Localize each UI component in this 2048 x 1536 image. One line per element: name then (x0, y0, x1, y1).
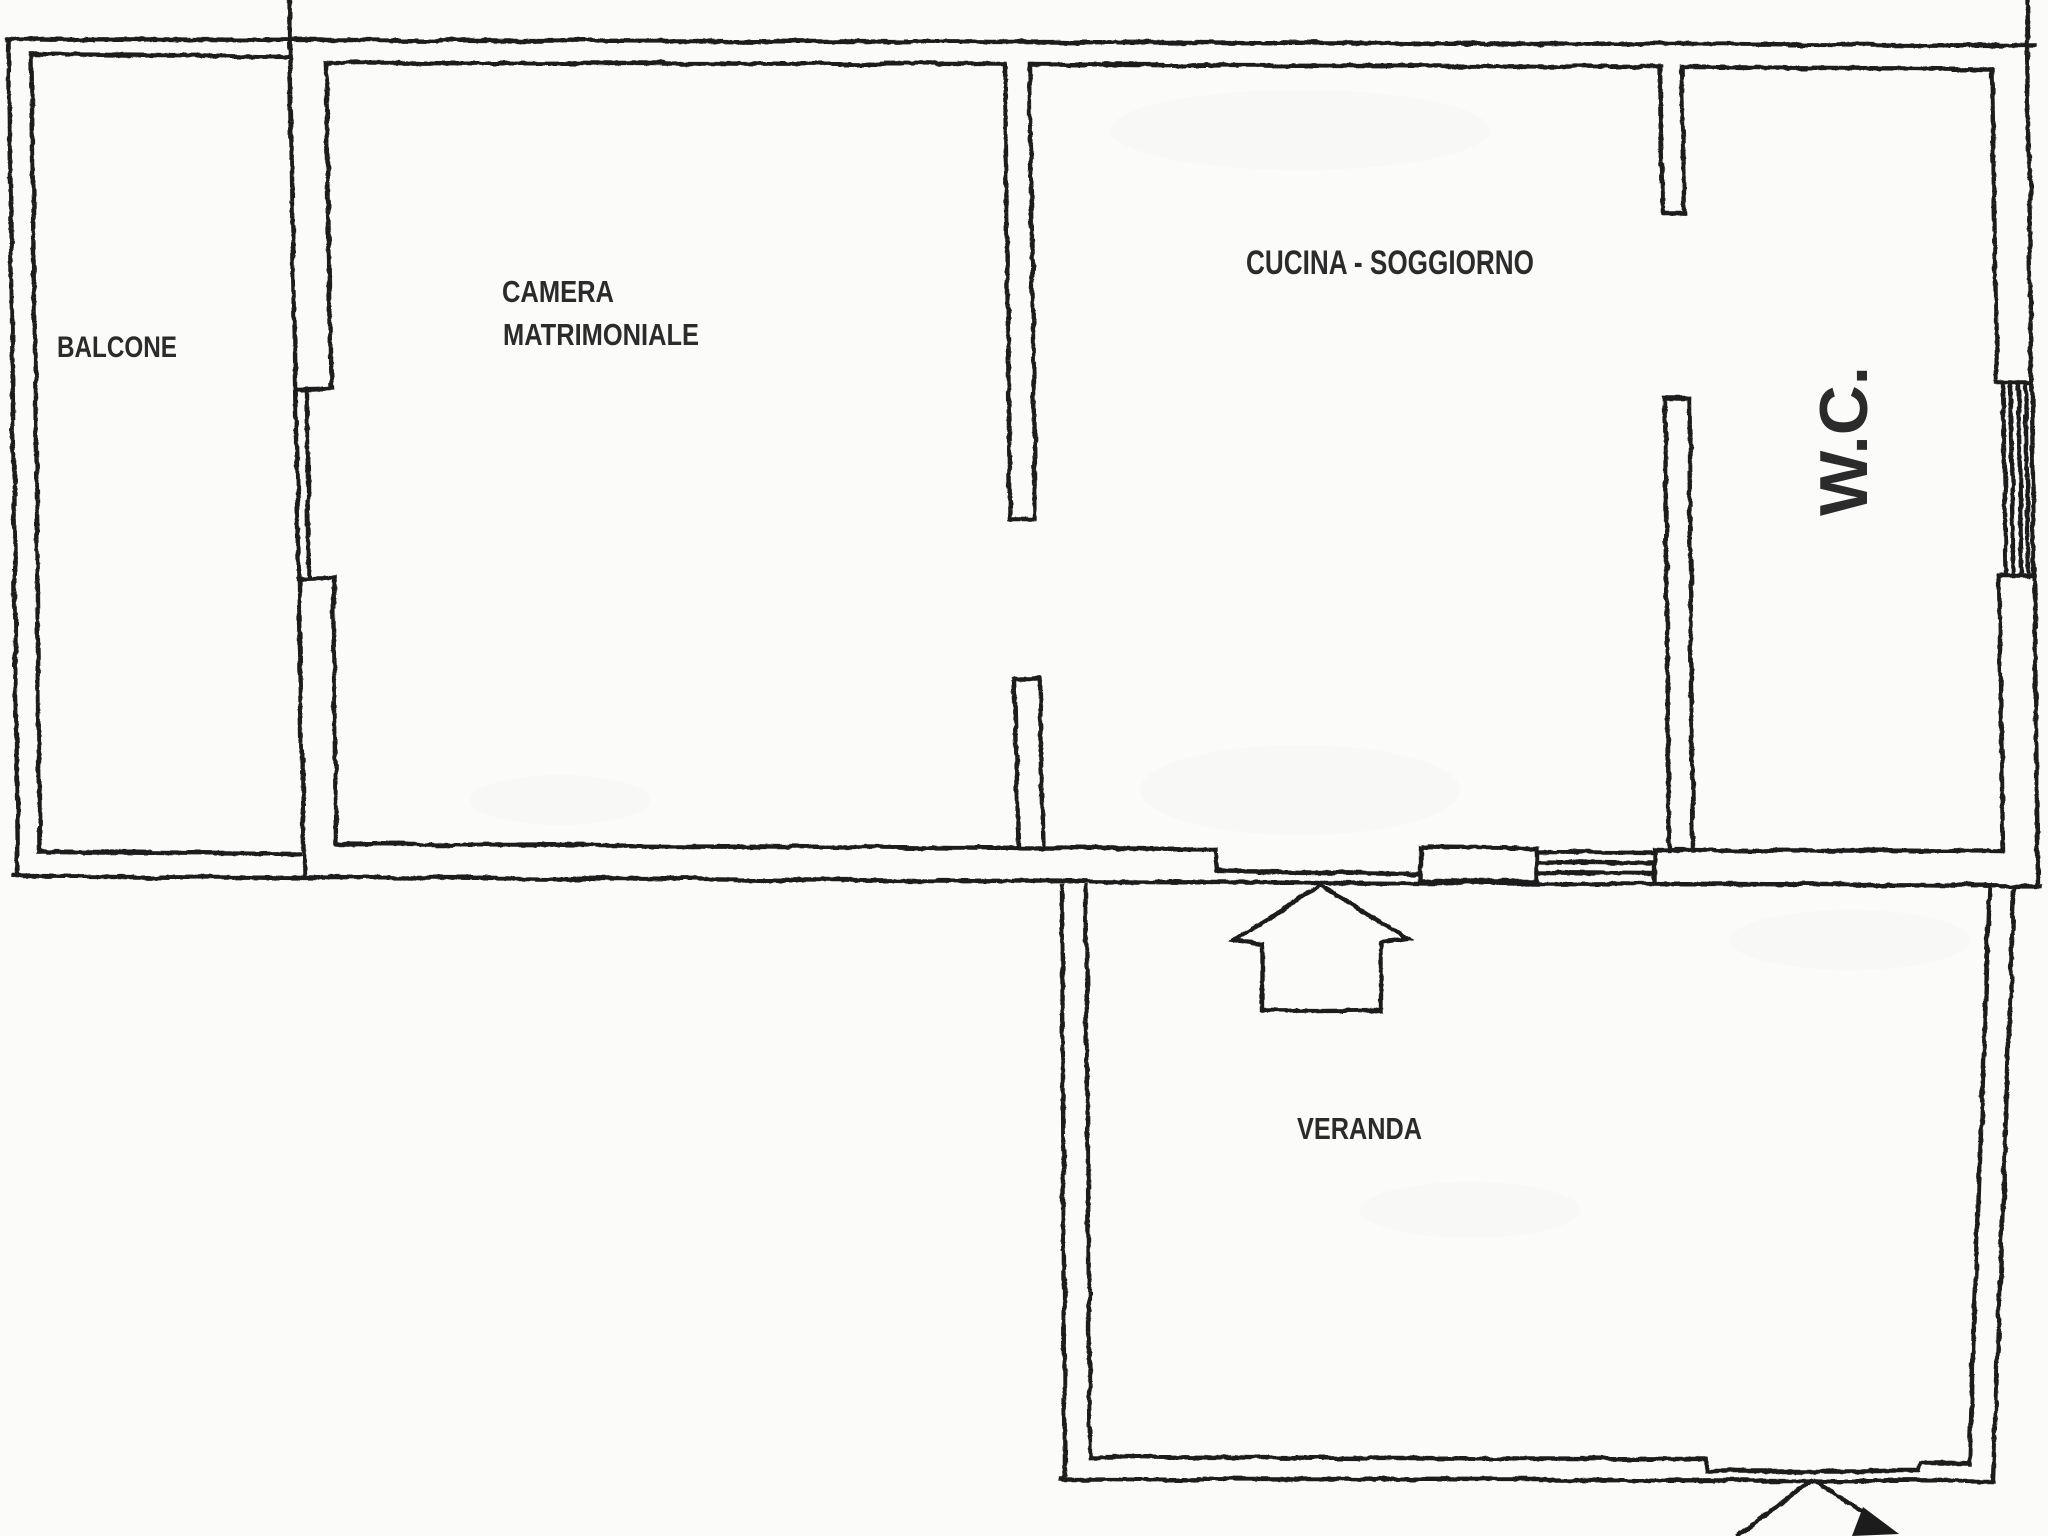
svg-text:VERANDA: VERANDA (1297, 1111, 1422, 1146)
svg-text:CAMERA: CAMERA (502, 274, 614, 309)
svg-text:BALCONE: BALCONE (57, 331, 177, 364)
svg-text:W.C.: W.C. (1806, 366, 1882, 516)
svg-text:MATRIMONIALE: MATRIMONIALE (503, 317, 699, 352)
svg-text:CUCINA - SOGGIORNO: CUCINA - SOGGIORNO (1246, 244, 1534, 282)
